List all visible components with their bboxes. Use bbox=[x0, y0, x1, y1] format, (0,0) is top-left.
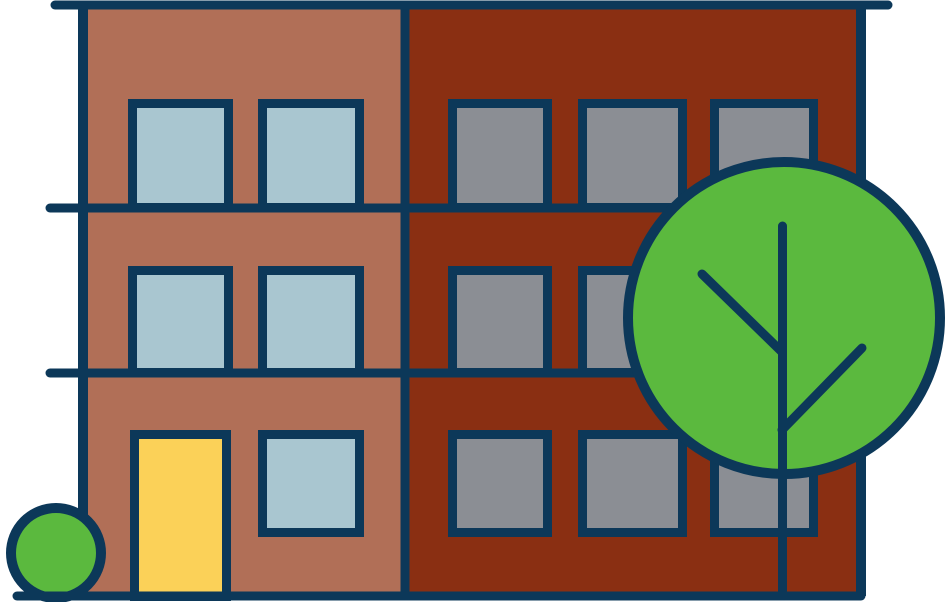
scene-canvas bbox=[0, 0, 947, 602]
window-right-top-1 bbox=[453, 104, 548, 208]
window-left-mid-1 bbox=[133, 271, 229, 373]
window-right-top-2 bbox=[583, 104, 683, 208]
window-left-mid-2 bbox=[263, 271, 360, 373]
window-left-top-2 bbox=[263, 104, 360, 208]
window-left-bottom bbox=[263, 435, 360, 533]
bush bbox=[11, 508, 101, 598]
front-door bbox=[135, 435, 227, 597]
illustration-building-scene bbox=[0, 0, 947, 602]
window-right-bottom-2 bbox=[583, 435, 683, 533]
window-left-top-1 bbox=[133, 104, 229, 208]
window-right-mid-1 bbox=[453, 271, 548, 373]
window-right-bottom-1 bbox=[453, 435, 548, 533]
